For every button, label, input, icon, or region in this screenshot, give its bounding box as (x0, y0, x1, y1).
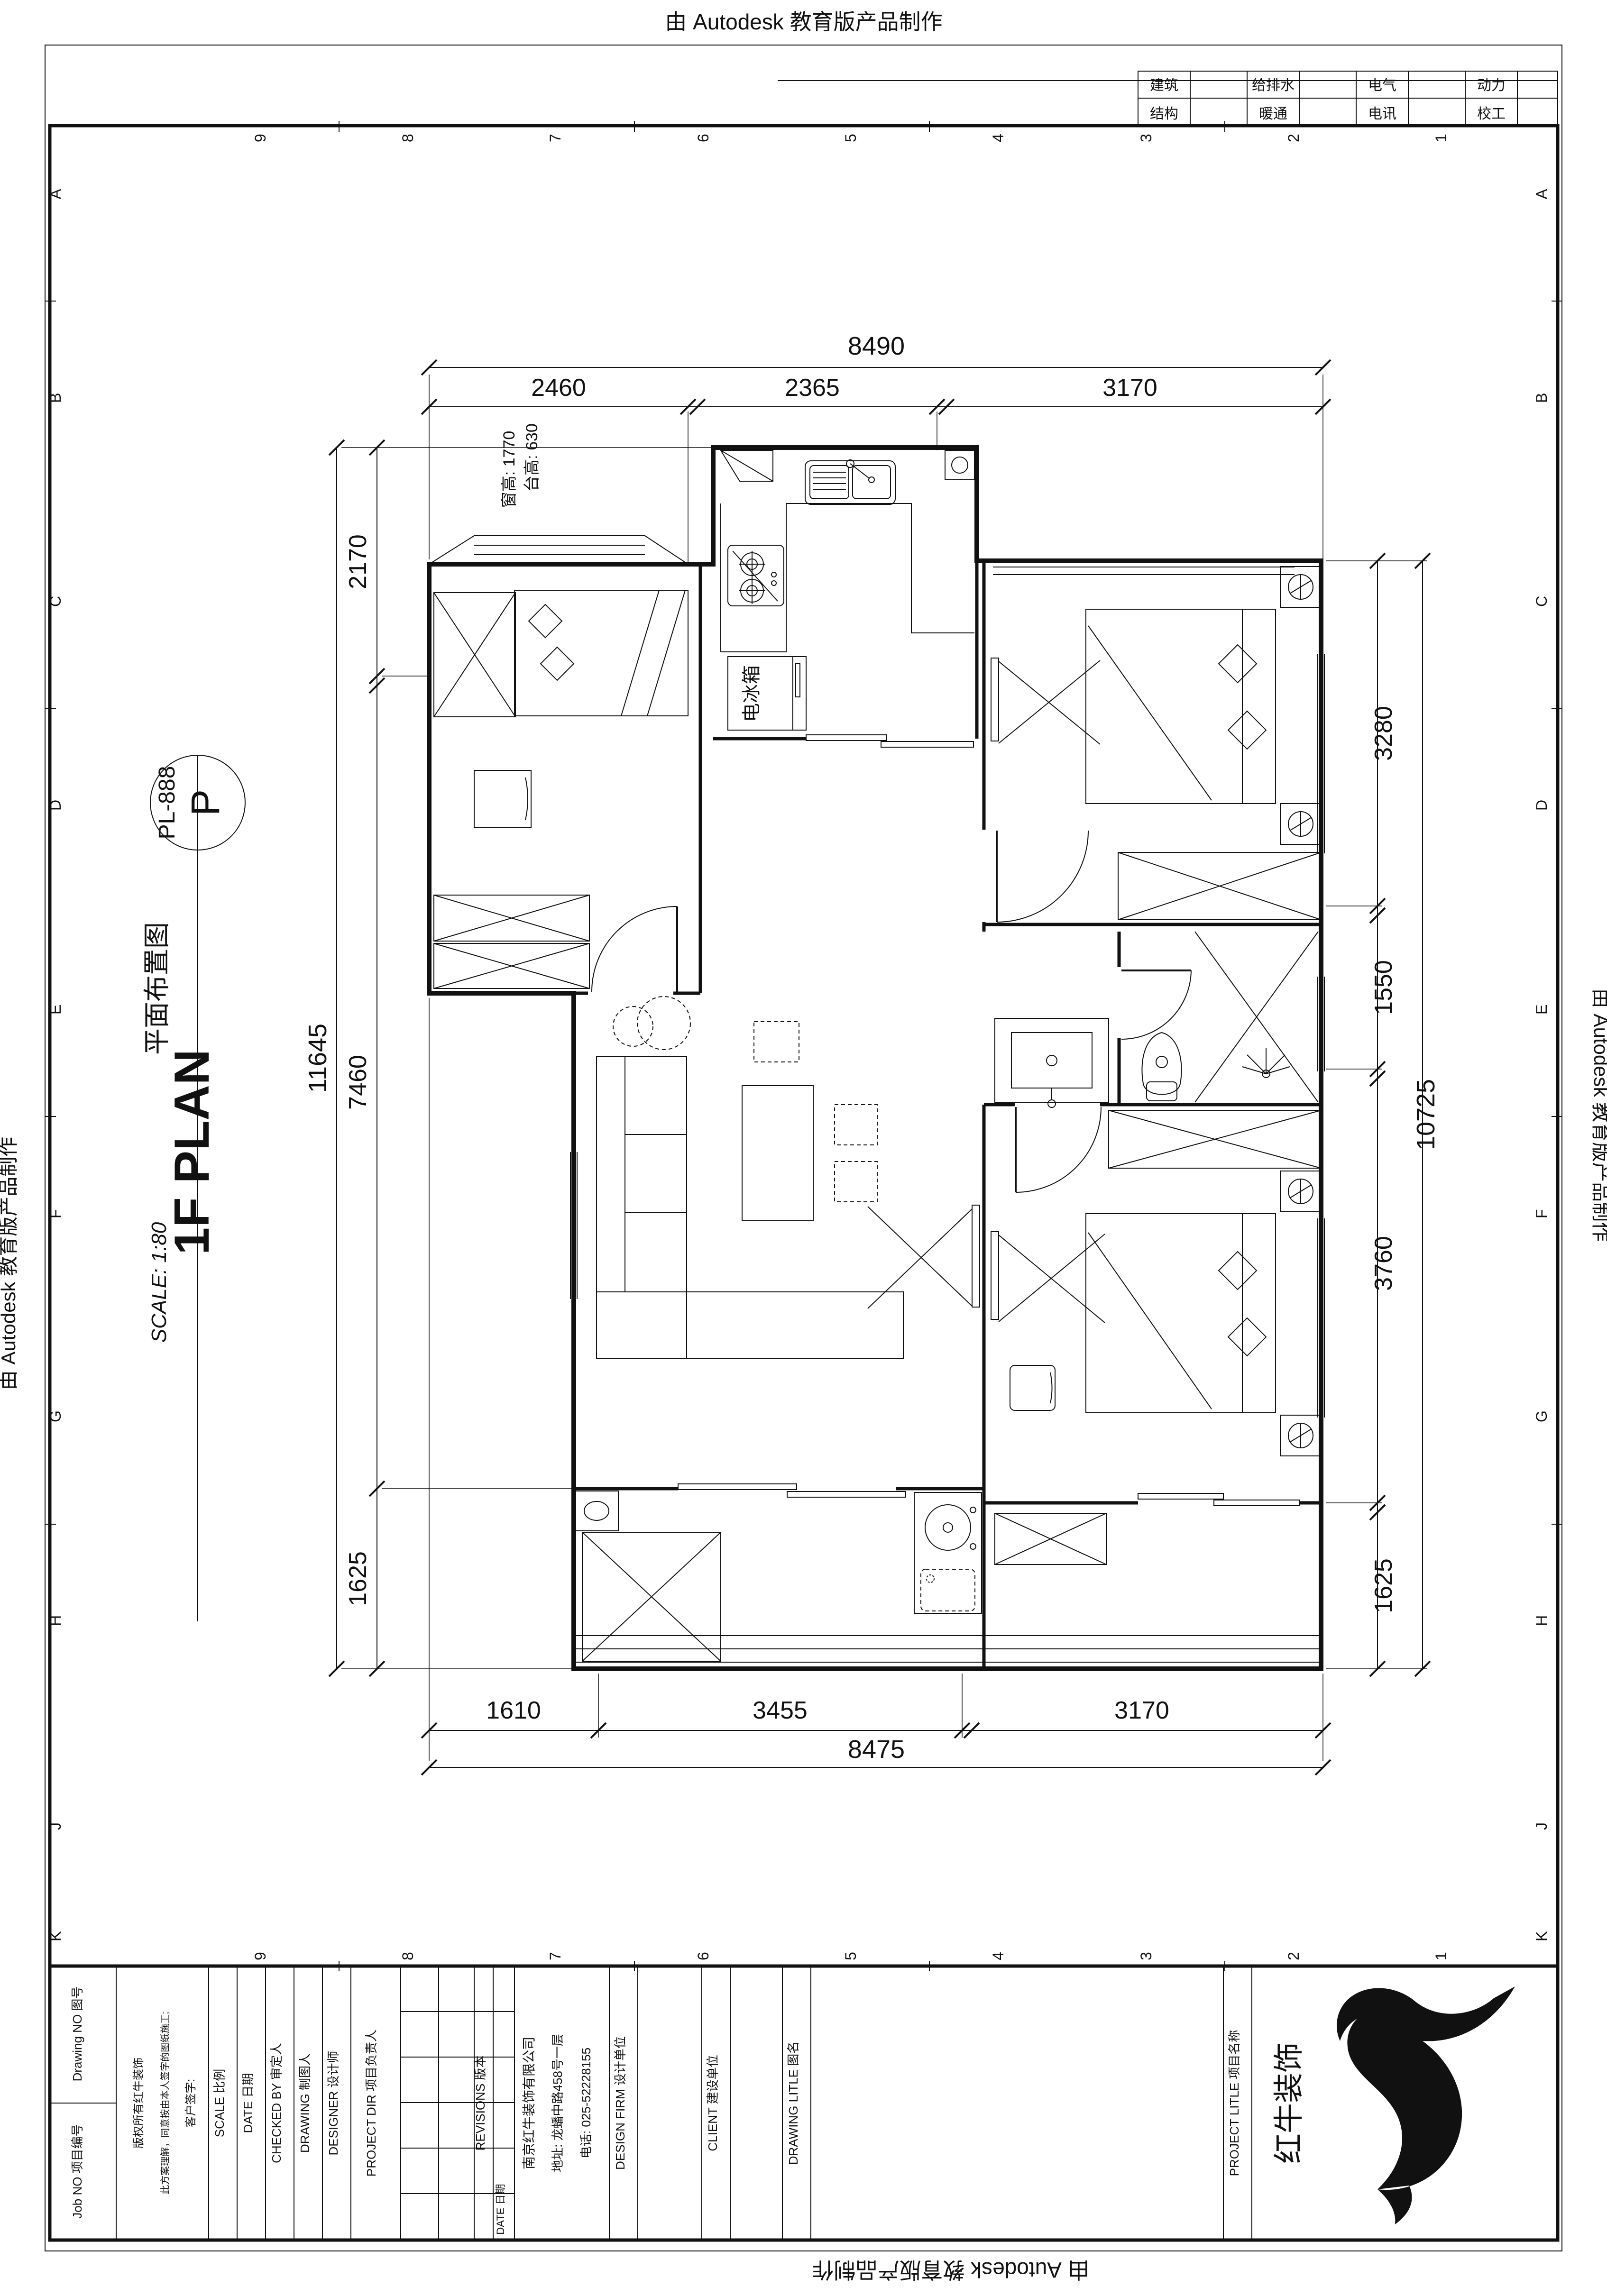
banner-text-left: 由 Autodesk 教育版产品制作 (0, 1137, 19, 1390)
grid-letter: B (1533, 393, 1550, 403)
grid-num: 9 (252, 1952, 269, 1960)
grid-num: 5 (842, 1952, 859, 1960)
grid-letter: H (47, 1615, 64, 1626)
discipline-table: 建筑 给排水 电气 动力 结构 暖通 电讯 校工 (1138, 71, 1558, 126)
tb-disclaimer-2: 此方案理解，同意按由本人签字的图纸施工; (160, 2012, 171, 2195)
grid-num: 4 (990, 134, 1007, 142)
grid-letter: F (1533, 1209, 1550, 1218)
grid-refs-top: 9 8 7 6 5 4 3 2 1 (252, 134, 1450, 142)
discipline-arch: 建筑 (1150, 78, 1178, 93)
counter-height-note: 台高: 630 (523, 423, 541, 492)
grid-letter: A (1533, 189, 1550, 199)
side-windows (570, 654, 1324, 1418)
dim-top-total: 8490 (848, 332, 905, 360)
tb-revisions-date: DATE 日期 (495, 2184, 506, 2234)
grid-num: 7 (547, 1952, 564, 1960)
title-block: Drawing NO 图号 Job NO 项目编号 版权所有红牛装饰 此方案理解… (50, 1966, 1515, 2240)
sliding-doors (678, 735, 1299, 1506)
room-a-furniture (434, 590, 688, 988)
fridge-label: 电冰箱 (741, 665, 762, 722)
grid-letter: B (47, 393, 64, 403)
bay-window (429, 536, 688, 564)
grid-num: 1 (1433, 134, 1450, 142)
grid-num: 4 (990, 1952, 1007, 1960)
grid-letter: F (47, 1209, 64, 1218)
grid-num: 3 (1138, 1952, 1155, 1960)
tb-phone: 电话: 025-52228155 (579, 2048, 593, 2159)
dim-right-total: 10725 (1412, 1079, 1440, 1150)
tb-design-firm: DESIGN FIRM 设计单位 (613, 2036, 627, 2170)
discipline-power: 动力 (1477, 78, 1506, 93)
tb-drawing-title: DRAWING LITLE 图名 (786, 2041, 800, 2165)
tb-designer: DESIGNER 设计师 (326, 2050, 340, 2155)
tb-scale: SCALE 比例 (212, 2069, 227, 2138)
grid-letter: A (47, 189, 64, 199)
banner-text-right: 由 Autodesk 教育版产品制作 (1590, 988, 1607, 1242)
autodesk-banner-bottom: 由 Autodesk 教育版产品制作 (812, 2258, 1089, 2282)
grid-letter: J (47, 1822, 64, 1830)
discipline-telecom: 电讯 (1368, 106, 1396, 122)
grid-letter: D (1533, 800, 1550, 811)
banner-text-bottom: 由 Autodesk 教育版产品制作 (812, 2258, 1089, 2282)
discipline-plumbing: 给排水 (1252, 78, 1295, 93)
grid-num: 6 (695, 1952, 712, 1960)
door-bedroom1 (997, 831, 1088, 922)
grid-num: 1 (1433, 1952, 1450, 1960)
dim-left-seg: 1625 (344, 1551, 372, 1606)
dim-left-seg: 2170 (344, 534, 372, 589)
tb-client: CLIENT 建设单位 (706, 2055, 720, 2151)
bedroom1-furniture (991, 567, 1321, 920)
grid-letter: K (47, 1931, 64, 1941)
title-block-grid (50, 1966, 1252, 2240)
dimension-lines (337, 367, 1427, 1767)
autodesk-banner-right: 由 Autodesk 教育版产品制作 (1590, 988, 1607, 1242)
grid-num: 9 (252, 134, 269, 142)
plan-title-cn: 平面布置图 (142, 922, 172, 1055)
dim-top-seg: 3170 (1102, 374, 1157, 402)
dim-top-seg: 2365 (785, 374, 840, 402)
tb-disclaimer-3: 客户签字: (184, 2079, 197, 2128)
window-height-note: 窗高: 1770 (500, 431, 518, 508)
tb-company: 南京红牛装饰有限公司 (522, 2037, 536, 2169)
tb-drawing: DRAWING 制图人 (298, 2053, 312, 2153)
grid-num: 7 (547, 134, 564, 142)
bathroom-fixtures (995, 932, 1318, 1107)
fridge (728, 657, 806, 730)
tb-address: 地址: 龙蟠中路458号一层 (551, 2034, 565, 2172)
kitchen-sink (805, 460, 895, 504)
discipline-electrical: 电气 (1368, 78, 1396, 93)
grid-refs-bottom: 9 8 7 6 5 4 3 2 1 (252, 1952, 1450, 1960)
kitchen-counter (721, 503, 974, 652)
grid-num: 2 (1285, 134, 1302, 142)
grid-num: 8 (399, 134, 416, 142)
stove-icon (728, 545, 784, 606)
banner-text-top: 由 Autodesk 教育版产品制作 (665, 9, 942, 34)
dim-bottom-seg: 3170 (1114, 1697, 1169, 1724)
tb-project-title: PROJECT LITLE 项目名称 (1227, 2030, 1241, 2177)
grid-letter: C (47, 596, 64, 607)
company-logo-text: 红牛装饰 (1272, 2042, 1306, 2164)
dimension-labels: 8490 2460 2365 3170 11645 2170 7460 1625… (303, 332, 1440, 1764)
autodesk-banner-top: 由 Autodesk 教育版产品制作 (665, 9, 942, 34)
bedroom1-window (993, 567, 1295, 575)
grid-num: 2 (1285, 1952, 1302, 1960)
door-room-a (592, 906, 677, 992)
grid-letter: K (1533, 1931, 1550, 1941)
dim-left-seg: 7460 (344, 1055, 372, 1110)
drawing-sheet: 由 Autodesk 教育版产品制作 由 Autodesk 教育版产品制作 由 … (0, 0, 1607, 2296)
tb-date: DATE 日期 (241, 2073, 255, 2133)
dim-top-seg: 2460 (531, 374, 586, 402)
master-furniture (991, 1110, 1321, 1456)
grid-letter: C (1533, 596, 1550, 607)
dim-left-total: 11645 (303, 1024, 332, 1093)
door-master (1016, 1107, 1101, 1192)
grid-letter: G (1533, 1410, 1550, 1422)
grid-letter: H (1533, 1615, 1550, 1626)
dimension-ticks (329, 360, 1430, 1775)
grid-letter: E (47, 1005, 64, 1015)
tb-checked-by: CHECKED BY 审定人 (269, 2043, 284, 2163)
drawing-number: PL-888 (155, 766, 180, 840)
door-bathroom (1121, 970, 1191, 1039)
living-furniture (597, 997, 980, 1358)
dim-right-seg: 1550 (1370, 960, 1397, 1015)
dim-right-seg: 3760 (1370, 1236, 1397, 1291)
tb-revisions: REVISIONS 版本 (473, 2056, 487, 2151)
discipline-hvac: 暖通 (1259, 106, 1287, 122)
drawing-label-block: PL-888 P 平面布置图 1F PLAN SCALE: 1:80 (142, 755, 245, 1621)
discipline-check: 校工 (1477, 106, 1506, 122)
plan-scale: SCALE: 1:80 (147, 1222, 171, 1343)
dim-bottom-seg: 3455 (753, 1697, 808, 1724)
bull-logo-icon (1337, 1986, 1515, 2224)
plan-title-en: 1F PLAN (165, 1049, 220, 1254)
grid-num: 5 (842, 134, 859, 142)
tb-drawing-no: Drawing NO 图号 (70, 1986, 84, 2082)
grid-letter: D (47, 800, 64, 811)
autodesk-banner-left: 由 Autodesk 教育版产品制作 (0, 1137, 19, 1390)
floor-plan-canvas: 由 Autodesk 教育版产品制作 由 Autodesk 教育版产品制作 由 … (0, 0, 1607, 2296)
drawing-letter: P (183, 789, 228, 816)
grid-num: 8 (399, 1952, 416, 1960)
grid-num: 3 (1138, 134, 1155, 142)
balcony-railing (574, 1636, 1321, 1662)
dim-bottom-seg: 1610 (486, 1697, 541, 1724)
dim-right-seg: 3280 (1370, 706, 1397, 761)
tb-project-dir: PROJECT DIR 项目负责人 (364, 2030, 378, 2177)
exterior-walls (429, 448, 1321, 1669)
grid-letter: G (47, 1410, 64, 1422)
floor-plan: 台高: 630 窗高: 1770 电冰箱 (429, 423, 1324, 1669)
tb-disclaimer-1: 版权所有红牛装饰 (132, 2058, 145, 2149)
interior-walls (429, 561, 1321, 1669)
grid-refs-right: A B C D E F G H J K (1533, 189, 1550, 1941)
dim-bottom-total: 8475 (848, 1735, 905, 1764)
tb-job-no: Job NO 项目编号 (70, 2124, 84, 2218)
grid-num: 6 (695, 134, 712, 142)
grid-letter: J (1533, 1822, 1550, 1830)
grid-letter: E (1533, 1005, 1550, 1015)
dim-right-seg: 1625 (1370, 1558, 1397, 1613)
discipline-structure: 结构 (1150, 106, 1178, 122)
